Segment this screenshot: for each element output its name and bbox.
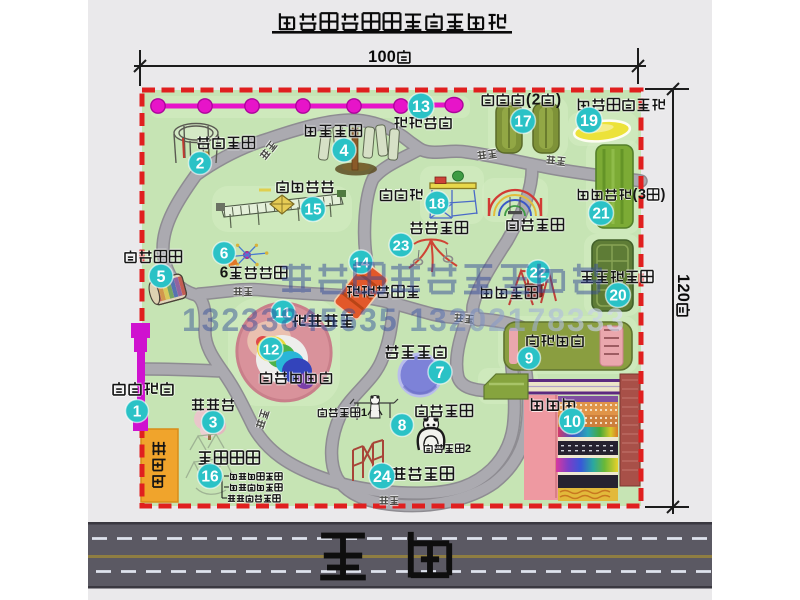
svg-text:): ) <box>556 91 561 108</box>
svg-text:15: 15 <box>304 202 322 219</box>
svg-text:8: 8 <box>398 418 407 435</box>
svg-text:5: 5 <box>156 268 165 286</box>
svg-text:16: 16 <box>201 469 219 486</box>
svg-text:6: 6 <box>220 264 229 281</box>
svg-text:17: 17 <box>514 114 531 131</box>
svg-text:3: 3 <box>209 415 218 432</box>
svg-text:2: 2 <box>532 91 541 108</box>
svg-text:2: 2 <box>196 156 205 173</box>
svg-text:2: 2 <box>674 283 692 292</box>
svg-text:21: 21 <box>592 206 610 223</box>
svg-text:1: 1 <box>133 404 142 421</box>
svg-text:1: 1 <box>361 407 367 419</box>
svg-text:0: 0 <box>377 48 386 66</box>
svg-text:1: 1 <box>674 274 692 283</box>
svg-text:7: 7 <box>435 364 444 382</box>
svg-text:23: 23 <box>393 237 410 254</box>
svg-text:0: 0 <box>674 293 692 302</box>
svg-text:6: 6 <box>220 246 229 263</box>
svg-text:9: 9 <box>525 351 534 368</box>
svg-text:13233845635 13202178333: 13233845635 13202178333 <box>182 302 624 338</box>
svg-text:12: 12 <box>263 341 280 358</box>
svg-text:18: 18 <box>429 195 446 212</box>
svg-text:2: 2 <box>465 443 471 455</box>
svg-text:0: 0 <box>387 48 396 66</box>
svg-text:13: 13 <box>412 98 430 116</box>
svg-text:24: 24 <box>373 468 391 486</box>
svg-text:3: 3 <box>638 187 646 203</box>
svg-text:): ) <box>661 187 666 203</box>
svg-text:19: 19 <box>580 112 598 130</box>
svg-text:10: 10 <box>563 413 581 431</box>
svg-text:(: ( <box>633 187 638 203</box>
svg-text:4: 4 <box>339 142 348 160</box>
svg-text:1: 1 <box>368 48 377 66</box>
